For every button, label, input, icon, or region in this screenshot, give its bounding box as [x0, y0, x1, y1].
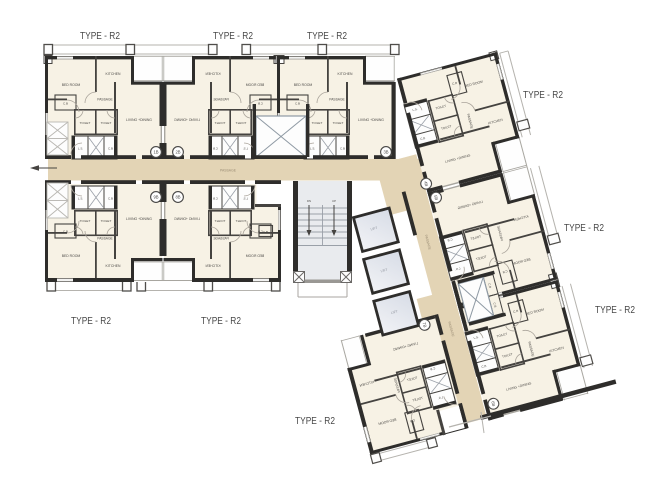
svg-text:C.B: C.B [63, 102, 68, 106]
svg-text:KITCHEN: KITCHEN [106, 264, 121, 268]
svg-text:3B: 3B [383, 150, 388, 155]
svg-text:L.S.: L.S. [310, 147, 316, 151]
svg-text:BED ROOM: BED ROOM [62, 254, 81, 258]
svg-text:LIVING +DINING: LIVING +DINING [174, 118, 200, 122]
svg-text:L.S.: L.S. [78, 197, 84, 201]
svg-text:C.B: C.B [213, 147, 218, 151]
svg-text:TYPE - R2: TYPE - R2 [595, 304, 635, 316]
svg-text:TYPE - R2: TYPE - R2 [71, 315, 111, 327]
svg-text:C.B: C.B [258, 102, 263, 106]
svg-text:PASSAGE: PASSAGE [97, 98, 113, 102]
svg-text:TOILET: TOILET [236, 121, 247, 125]
svg-text:8B: 8B [175, 195, 180, 200]
svg-text:C.B: C.B [213, 197, 218, 201]
svg-text:TOILET: TOILET [101, 219, 112, 223]
svg-text:TOILET: TOILET [312, 121, 323, 125]
svg-text:TYPE - R2: TYPE - R2 [523, 89, 563, 101]
svg-text:C.B: C.B [263, 230, 268, 234]
svg-text:TYPE - R2: TYPE - R2 [295, 415, 335, 427]
svg-text:TYPE - R2: TYPE - R2 [80, 30, 120, 42]
svg-text:TOILET: TOILET [215, 121, 226, 125]
svg-text:BED ROOM: BED ROOM [294, 83, 313, 87]
svg-text:TOILET: TOILET [80, 121, 91, 125]
svg-text:LIVING +DINING: LIVING +DINING [126, 217, 152, 221]
svg-text:2B: 2B [175, 150, 180, 155]
svg-text:C.B: C.B [340, 147, 345, 151]
svg-text:C.B: C.B [295, 102, 300, 106]
svg-text:TYPE - R2: TYPE - R2 [307, 30, 347, 42]
svg-text:PASSAGE: PASSAGE [329, 98, 345, 102]
svg-text:BED ROOM: BED ROOM [246, 254, 265, 258]
svg-text:TYPE - R2: TYPE - R2 [201, 315, 241, 327]
svg-text:C.B: C.B [108, 147, 113, 151]
svg-text:KITCHEN: KITCHEN [106, 72, 121, 76]
svg-text:9B: 9B [153, 195, 158, 200]
svg-text:LIVING +DINING: LIVING +DINING [126, 118, 152, 122]
svg-text:PASSAGE: PASSAGE [212, 237, 228, 241]
svg-text:PASSAGE: PASSAGE [220, 169, 237, 173]
svg-text:L.S.: L.S. [243, 197, 249, 201]
svg-text:TOILET: TOILET [101, 121, 112, 125]
svg-text:KITCHEN: KITCHEN [338, 72, 353, 76]
svg-text:LIVING +DINING: LIVING +DINING [174, 217, 200, 221]
svg-text:TOILET: TOILET [333, 121, 344, 125]
svg-text:LIVING +DINING: LIVING +DINING [358, 118, 384, 122]
svg-text:TYPE - R2: TYPE - R2 [213, 30, 253, 42]
svg-text:L.S.: L.S. [78, 147, 84, 151]
svg-text:1B: 1B [153, 150, 158, 155]
svg-text:KITCHEN: KITCHEN [205, 72, 220, 76]
svg-text:BED ROOM: BED ROOM [62, 83, 81, 87]
svg-text:TOILET: TOILET [236, 219, 247, 223]
svg-text:TOILET: TOILET [215, 219, 226, 223]
svg-text:C.B: C.B [63, 230, 68, 234]
svg-text:PASSAGE: PASSAGE [212, 98, 228, 102]
svg-text:TYPE - R2: TYPE - R2 [564, 222, 604, 234]
svg-text:PASSAGE: PASSAGE [97, 237, 113, 241]
svg-text:UP: UP [332, 199, 336, 203]
svg-text:TOILET: TOILET [80, 219, 91, 223]
svg-text:L.S.: L.S. [243, 147, 249, 151]
svg-text:C.B: C.B [108, 197, 113, 201]
svg-text:BED ROOM: BED ROOM [246, 83, 265, 87]
svg-text:KITCHEN: KITCHEN [205, 264, 220, 268]
svg-text:DN: DN [307, 199, 311, 203]
